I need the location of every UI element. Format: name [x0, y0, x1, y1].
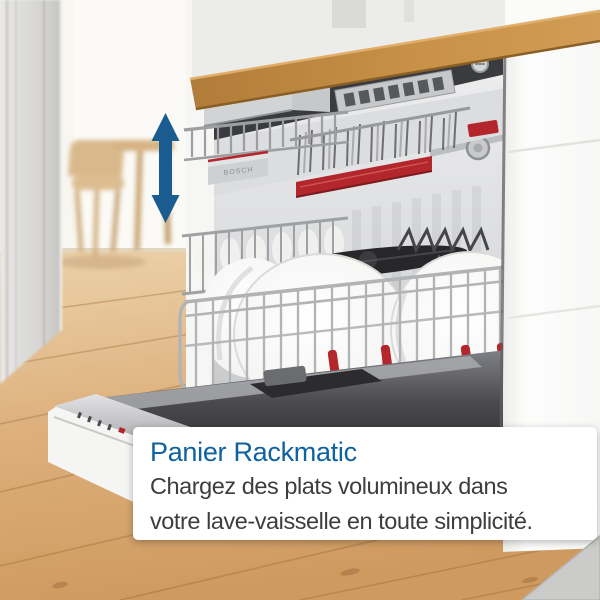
feature-description-line1: Chargez des plats volumineux dans	[150, 469, 597, 504]
double-arrow-shape	[152, 113, 180, 223]
caption-card: Panier Rackmatic Chargez des plats volum…	[133, 427, 597, 540]
door-frame	[0, 0, 62, 384]
vertical-double-arrow-icon	[145, 110, 186, 228]
feature-title: Panier Rackmatic	[150, 436, 597, 469]
product-feature-image: BOSCH	[0, 0, 600, 600]
feature-description-line2: votre lave-vaisselle en toute simplicité…	[150, 504, 597, 539]
